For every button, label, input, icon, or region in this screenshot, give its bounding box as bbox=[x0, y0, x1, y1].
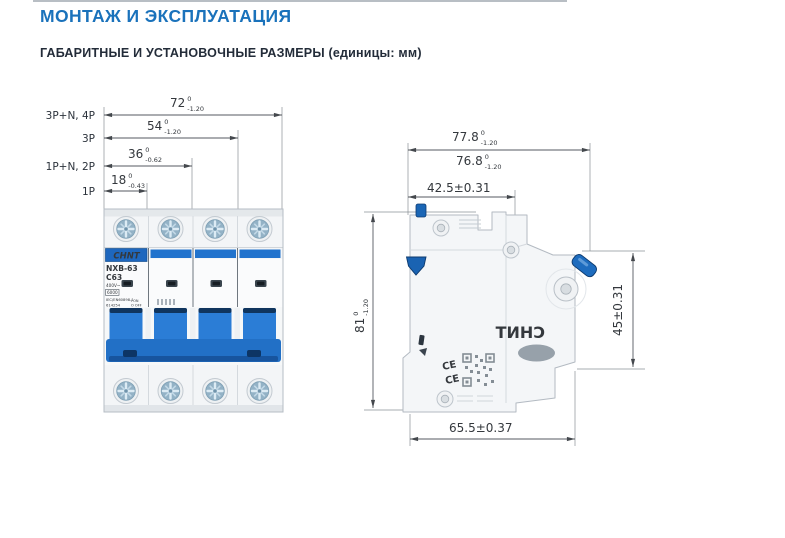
pole-band bbox=[151, 250, 192, 259]
screw-icon bbox=[158, 217, 183, 242]
dim-value-77-8: 77.80-1.20 bbox=[452, 129, 497, 147]
screw-icon bbox=[247, 217, 272, 242]
code-label: 614254 bbox=[106, 304, 121, 308]
terminal-clip bbox=[416, 204, 426, 217]
screw-icon bbox=[437, 391, 453, 407]
dim-value-65-5: 65.5±0.37 bbox=[449, 421, 513, 435]
dim-value-72: 720-1.20 bbox=[170, 95, 204, 113]
dimension-drawing: 3P+N, 4P 3P 1P+N, 2P 1P 720-1.20 540-1.2… bbox=[0, 0, 785, 538]
screw-icon bbox=[114, 217, 139, 242]
svg-text:CHNT: CHNT bbox=[495, 323, 545, 342]
on-label: I ON bbox=[131, 299, 139, 303]
pole-band bbox=[195, 250, 236, 259]
screw-icon bbox=[503, 242, 519, 258]
dim-value-54: 540-1.20 bbox=[147, 118, 181, 136]
capacity-label: 6000 bbox=[107, 290, 118, 295]
standard-label: IEC/EN60898-1 bbox=[106, 298, 134, 302]
screw-icon bbox=[114, 379, 139, 404]
breaker-bottom-edge bbox=[105, 405, 283, 412]
voltage-label: 400V~ bbox=[106, 283, 121, 288]
toggle-handle bbox=[110, 308, 143, 342]
pole-config-label: 3P+N, 4P bbox=[46, 110, 95, 122]
screw-icon bbox=[247, 379, 272, 404]
off-label: O OFF bbox=[131, 304, 142, 308]
screw-icon bbox=[203, 217, 228, 242]
side-body-outline bbox=[403, 212, 575, 412]
screw-icon bbox=[203, 379, 228, 404]
dim-value-36: 360-0.62 bbox=[128, 146, 162, 164]
toggle-handle bbox=[154, 308, 187, 342]
dim-value-76-8: 76.80-1.20 bbox=[456, 153, 501, 171]
model-label: NXB-63 bbox=[106, 264, 138, 273]
toggle-handles bbox=[105, 307, 283, 365]
rating-label: C63 bbox=[106, 273, 122, 282]
breaker-top-edge bbox=[105, 210, 283, 217]
toggle-handle bbox=[243, 308, 276, 342]
pole-config-label: 1P+N, 2P bbox=[46, 161, 95, 173]
screw-icon bbox=[433, 220, 449, 236]
dim-value-18: 180-0.43 bbox=[111, 172, 145, 190]
breaker-front-view: CHNT NXB-63 C63 400V~ 6000 IEC/EN60898-1… bbox=[104, 209, 283, 412]
dim-value-81: 810-1.20 bbox=[352, 299, 370, 333]
brand-logo: CHNT bbox=[113, 252, 140, 262]
watermark: CHNT bbox=[495, 323, 545, 342]
pole-band bbox=[240, 250, 281, 259]
side-view-diagram: 77.80-1.20 76.80-1.20 42.5±0.31 810-1.20… bbox=[352, 129, 645, 446]
dim-value-45: 45±0.31 bbox=[611, 284, 625, 336]
toggle-handle bbox=[199, 308, 232, 342]
front-view-diagram: 3P+N, 4P 3P 1P+N, 2P 1P 720-1.20 540-1.2… bbox=[46, 95, 283, 412]
pole-config-label: 3P bbox=[82, 133, 95, 145]
dim-value-42-5: 42.5±0.31 bbox=[427, 181, 491, 195]
screw-icon bbox=[158, 379, 183, 404]
rail-slot bbox=[518, 345, 555, 362]
breaker-side-view: CHNT CE CE bbox=[403, 204, 599, 412]
page: МОНТАЖ И ЭКСПЛУАТАЦИЯ ГАБАРИТНЫЕ И УСТАН… bbox=[0, 0, 785, 538]
pole-config-label: 1P bbox=[82, 186, 95, 198]
